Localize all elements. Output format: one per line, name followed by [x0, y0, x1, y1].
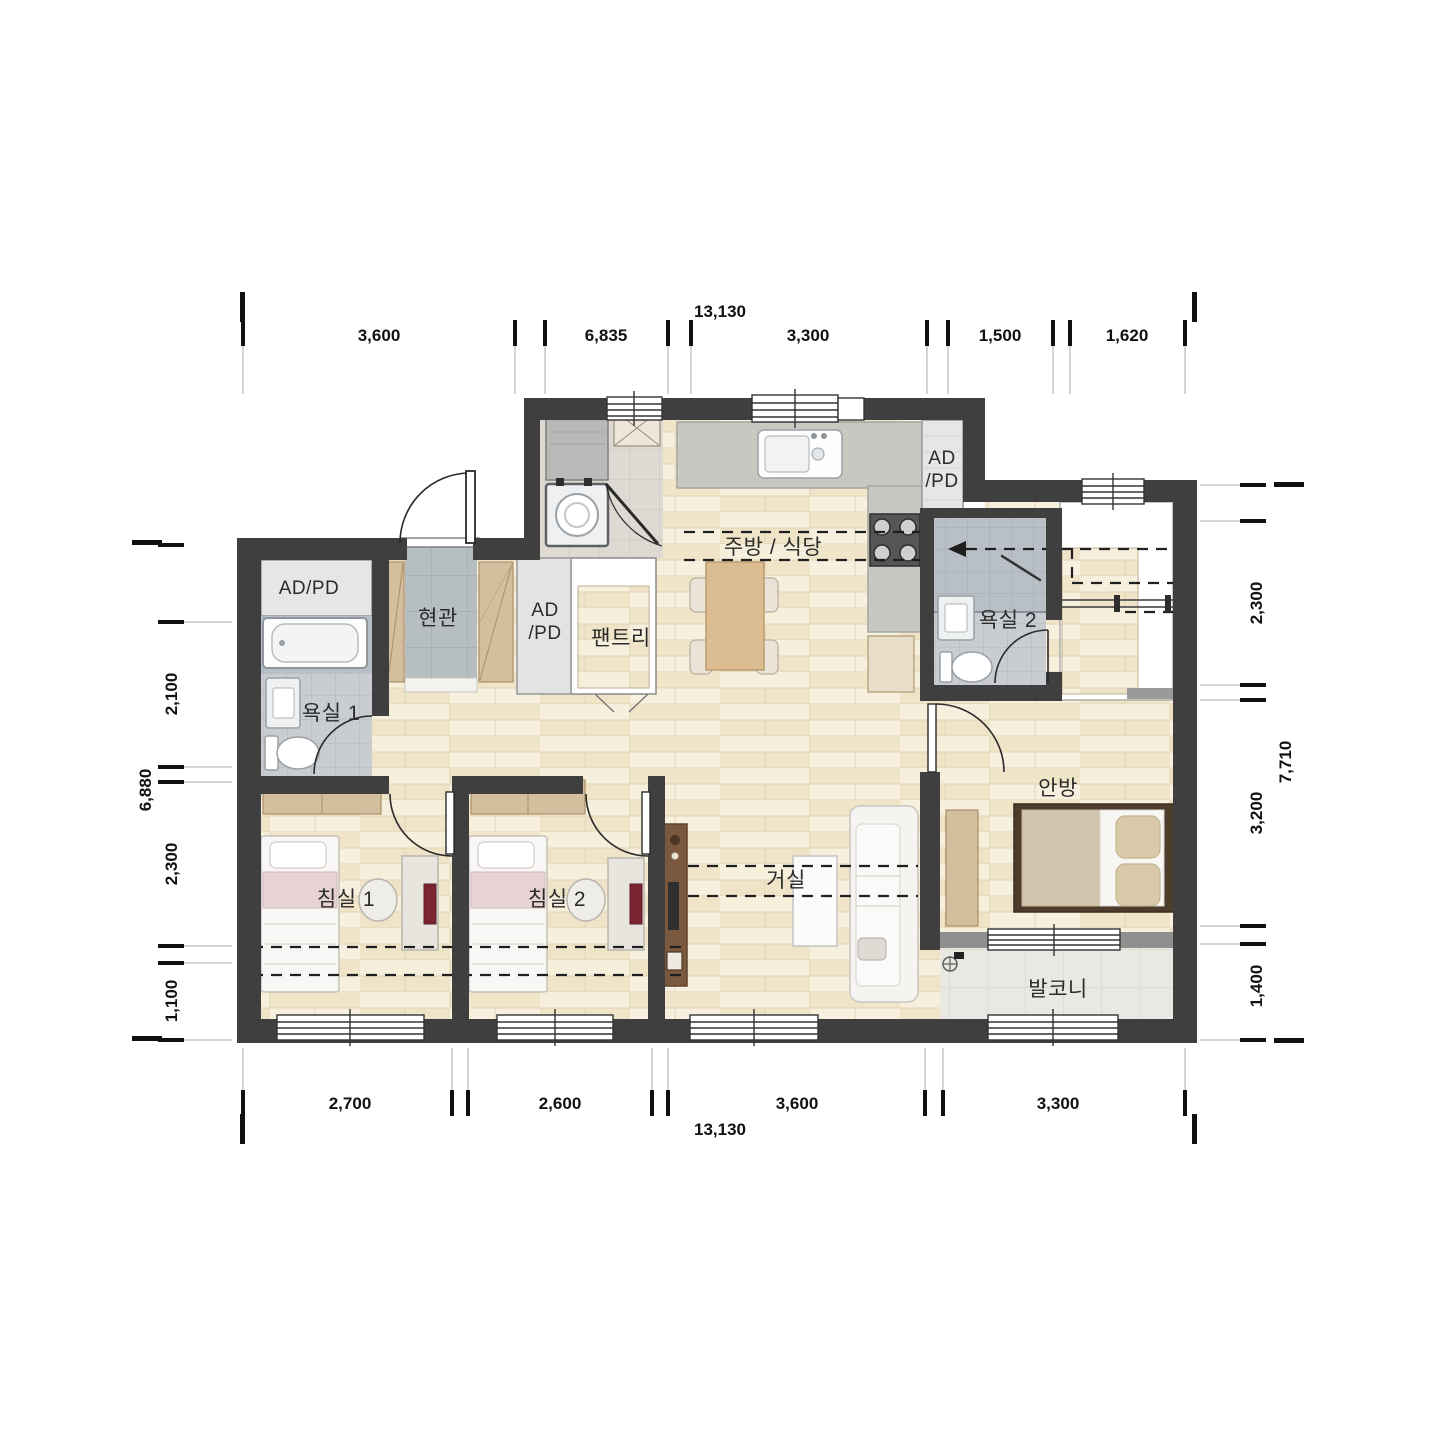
bath1-sink: [266, 678, 300, 728]
bath1-toilet: [265, 736, 319, 770]
bath2-toilet: [940, 652, 992, 682]
stove: [870, 514, 920, 566]
bedroom1-desk: [402, 856, 438, 950]
entrance-door: [400, 471, 475, 543]
bathtub: [263, 618, 367, 668]
ad-pd-2-area: [517, 558, 571, 694]
window-kitchen: [752, 389, 838, 428]
window-bedroom1: [277, 1009, 424, 1046]
ad-pd-3-area: [922, 420, 963, 516]
ad-pd-1-area: [261, 560, 372, 616]
master-wardrobe: [946, 810, 978, 926]
coffee-table: [793, 856, 837, 946]
shoe-cabinet-right: [479, 562, 513, 682]
bedroom1-chair: [359, 879, 397, 921]
wall-niche: [838, 398, 864, 420]
washing-machine: [546, 478, 608, 546]
balcony-floor: [940, 948, 1173, 1019]
kitchen-cabinet: [868, 636, 914, 692]
window-dressing: [1082, 473, 1144, 510]
shoe-cabinet-left: [387, 562, 404, 682]
floor-plan-drawing: [0, 0, 1436, 1436]
window-living: [690, 1009, 818, 1046]
bedroom2-desk: [608, 858, 644, 950]
utility-cabinet: [546, 410, 608, 480]
kitchen-sink: [758, 430, 842, 478]
bedroom1-bed: [261, 836, 339, 992]
bedroom2-chair: [567, 879, 605, 921]
master-bed: [1014, 804, 1174, 912]
tv-unit: [663, 824, 687, 986]
window-balcony-exterior: [988, 1009, 1118, 1046]
entrance-floor: [405, 543, 477, 681]
bedroom2-bed: [469, 836, 547, 992]
sofa: [850, 806, 918, 1002]
bath2-sink: [938, 596, 974, 640]
floor-plan-canvas: 13,130 3,600 6,835 3,300 1,500 1,620 2,7…: [0, 0, 1436, 1436]
window-bedroom2: [497, 1009, 613, 1046]
